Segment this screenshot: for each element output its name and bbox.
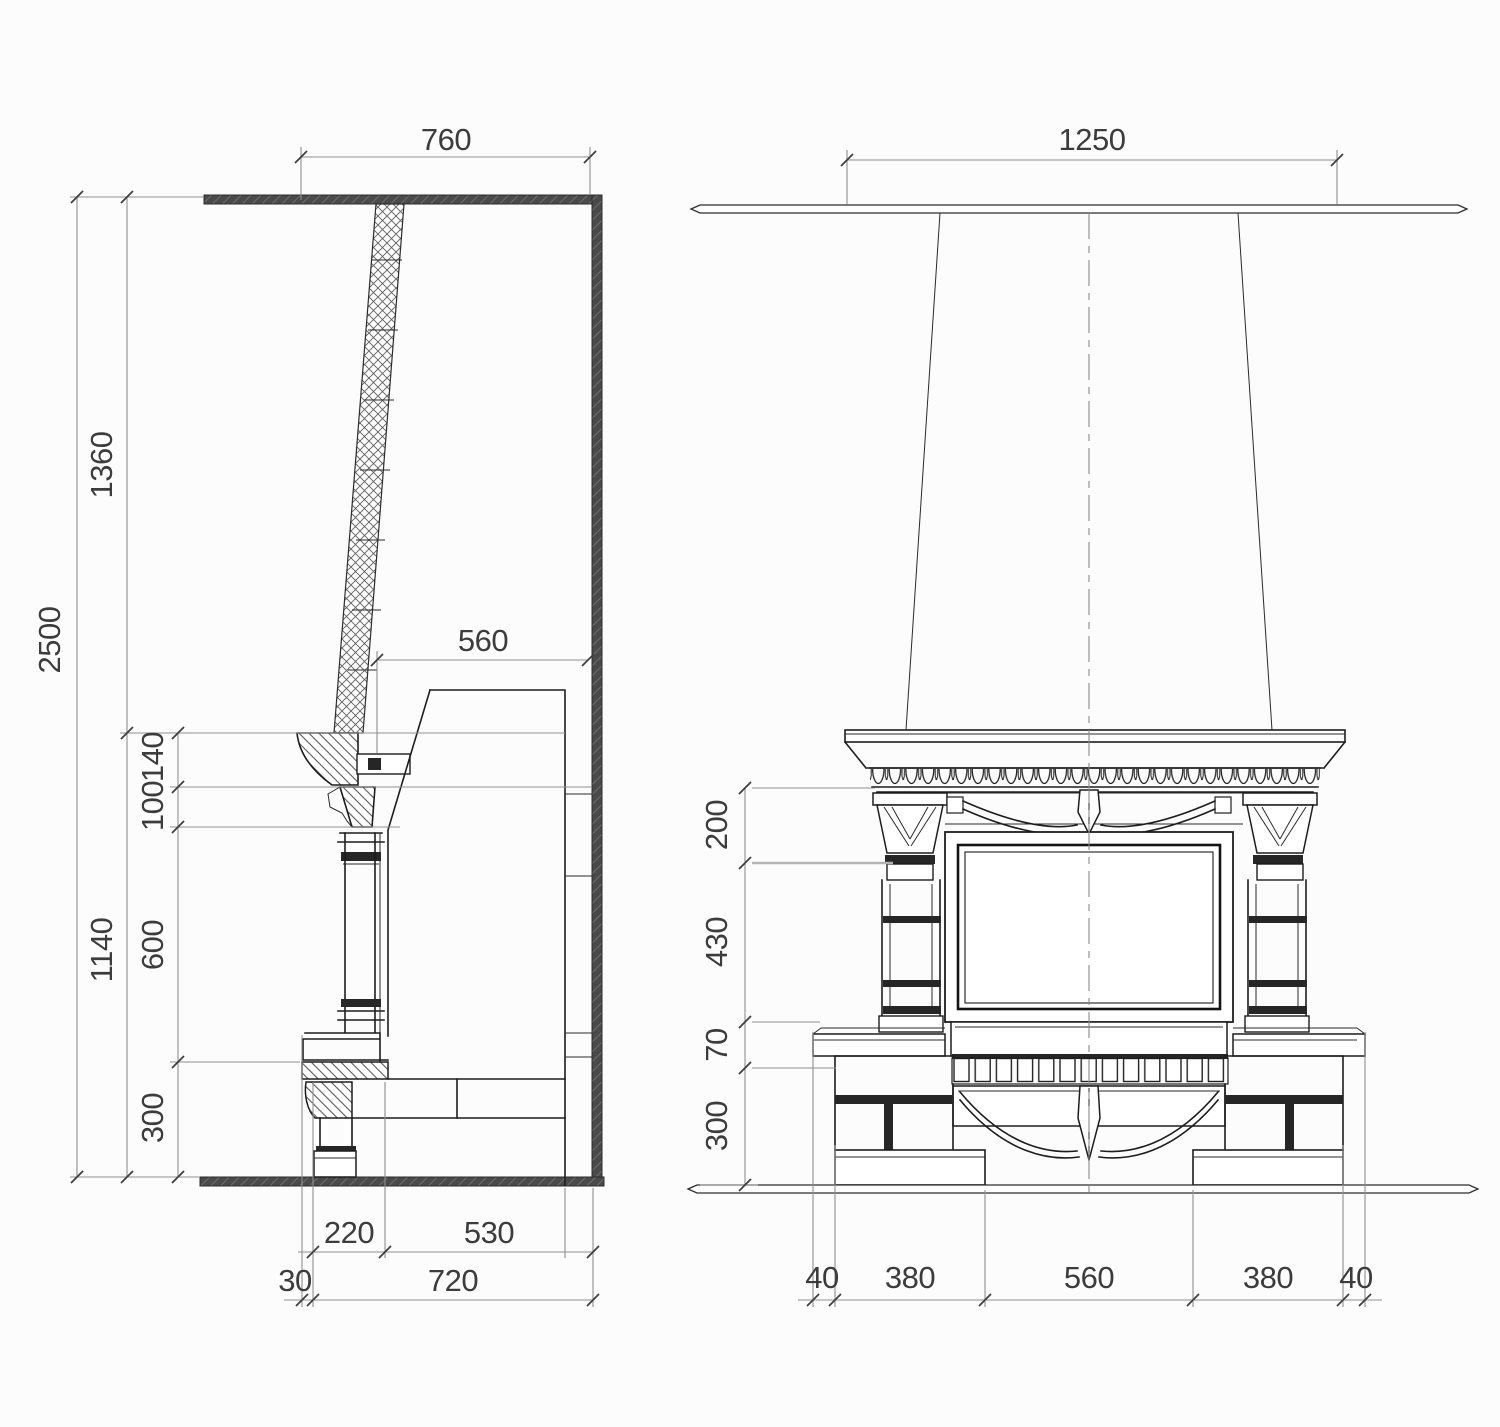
dim-label-hearth-depth: 220: [324, 1215, 374, 1250]
chimney-flue-section: [334, 204, 404, 733]
dim-label-left-overhang: 40: [805, 1260, 839, 1295]
dim-label-opening-height: 430: [699, 917, 734, 967]
dim-label-right-pier-width: 380: [1243, 1260, 1293, 1295]
drawing-canvas: 760 560 2500 1360 1140 140 100 600 300 2…: [0, 0, 1500, 1427]
dim-label-flue-width-ceiling: 1250: [1059, 122, 1126, 157]
dim-label-upper-wall-height: 1360: [84, 431, 119, 498]
dim-label-flue-width-top: 760: [421, 122, 471, 157]
dim-label-depth-to-wall: 560: [458, 623, 508, 658]
dim-label-opening-width: 560: [1064, 1260, 1114, 1295]
dim-label-total-depth: 720: [428, 1263, 478, 1298]
dim-label-shelf-thickness: 140: [135, 732, 170, 782]
egg-and-dart-molding: [870, 768, 1320, 787]
dim-label-base-height-front: 300: [699, 1101, 734, 1151]
base-section: [302, 1033, 388, 1177]
side-section-view: 760 560 2500 1360 1140 140 100 600 300 2…: [32, 122, 604, 1307]
fireplace-technical-drawing: 760 560 2500 1360 1140 140 100 600 300 2…: [0, 0, 1500, 1427]
left-capital: [873, 793, 947, 880]
dim-label-corbel-height: 100: [135, 781, 170, 831]
column-section: [338, 833, 384, 1032]
floor-line-front: [688, 1185, 1478, 1193]
dentil-course: [952, 1054, 1228, 1084]
left-pilaster: [879, 880, 943, 1032]
dimensions-front-view: 1250 200 430 70 300 40 380 560 380 40: [699, 122, 1382, 1307]
ceiling-line-front: [691, 205, 1467, 213]
mantel-shelf-front: [845, 730, 1345, 792]
frieze-swag-panel: [945, 790, 1243, 834]
right-pilaster: [1245, 880, 1309, 1032]
ceiling-slab: [204, 195, 602, 204]
right-capital: [1243, 793, 1317, 880]
dim-label-fireplace-height: 1140: [84, 917, 119, 982]
damper-box: [357, 754, 410, 774]
dim-label-capital-height: 200: [699, 800, 734, 850]
front-elevation-view: 1250 200 430 70 300 40 380 560 380 40: [688, 122, 1478, 1307]
dim-label-right-overhang: 40: [1339, 1260, 1373, 1295]
dim-label-plinth-offset: 30: [278, 1263, 312, 1298]
rear-wall: [592, 195, 602, 1186]
floor-slab: [200, 1177, 604, 1186]
dim-label-shelf-band-height: 70: [699, 1028, 734, 1062]
dim-label-column-height: 600: [135, 920, 170, 970]
dim-label-body-depth: 530: [464, 1215, 514, 1250]
dim-label-base-height-side: 300: [135, 1093, 170, 1143]
damper-handle: [368, 758, 381, 770]
dimensions-side-view: 760 560 2500 1360 1140 140 100 600 300 2…: [32, 122, 599, 1307]
dim-label-left-pier-width: 380: [885, 1260, 935, 1295]
dim-label-ceiling-height: 2500: [32, 606, 67, 673]
